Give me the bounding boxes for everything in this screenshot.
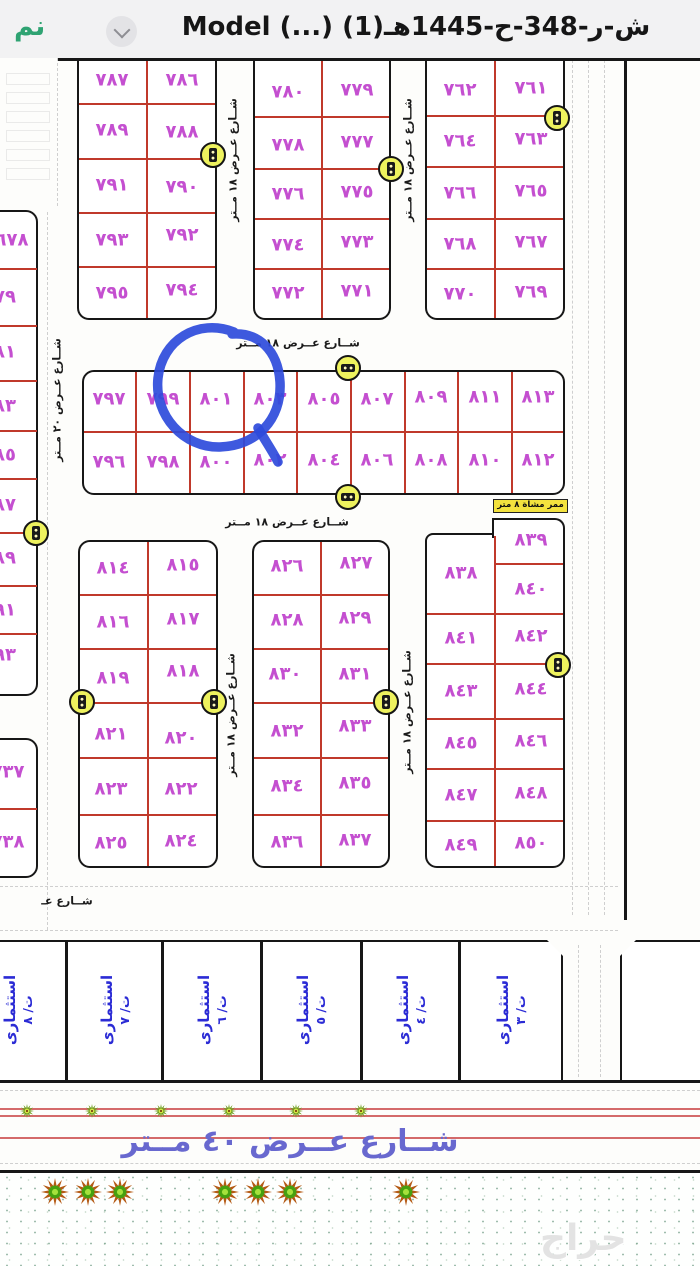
plot-number: ٧٩١ [96,175,129,196]
plot-number: ٨١٢ [522,450,555,471]
utility-marker-icon [23,520,49,546]
plot-number: ٨٠٩ [415,387,448,408]
plot-number: ٨٤٨ [515,783,548,804]
plot-number: ٧٨٦ [166,70,199,91]
plot-number: ٧٧٨ [272,135,305,156]
street-label-18m: شــارع عــرض ١٨ مــتر [227,98,240,222]
commercial-plot-label: استثمارىت/ ٥ [294,975,328,1045]
plot-number: ٧٧٩ [341,80,374,101]
plot-number: ٨٠٤ [308,450,341,471]
commercial-plot-label: استثمارىت/ ٤ [394,975,428,1045]
plot-number: ٨١٦ [97,612,130,633]
plot-number: ٨١٧ [167,609,200,630]
plot-number: ٨٠٦ [361,450,394,471]
plot-number: ٧٣٨ [0,832,24,853]
utility-marker-icon [69,689,95,715]
plot-number: ٨٣٥ [339,773,372,794]
plot-number: ٧٨٨ [166,122,199,143]
street-label-18m: شــارع عــرض ١٨ مــتر [225,653,238,777]
plot-number: ٧٧٦ [272,184,305,205]
plot-number: ٧٧٠ [444,284,477,305]
plot-number: ٨٣ [0,396,16,417]
street-label-18m: شــارع عــرض ١٨ مــتر [225,516,349,529]
plot-number: ٨٤٥ [445,733,478,754]
plot-number: ٨١٥ [167,555,200,576]
watermark: حراج [540,1218,627,1259]
plot-number-circled: ٨٠١ [200,389,233,410]
plot-number: ٩٣ [0,645,16,666]
small-tree-icon [154,1104,168,1118]
street-label-18m: شــارع عــرض ١٨ مــتر [236,337,360,350]
plot-number: ٧٧٢ [272,283,305,304]
plot-number: ٨٤٩ [445,835,478,856]
plot-number: ٨١٣ [522,387,555,408]
block-bottom-right [620,940,700,1082]
document-title: ش-ر-348-ح-1445هـ(1) (...) Model [140,12,692,42]
plot-number: ٨٢٢ [165,779,198,800]
plot-number: ٨٤٧ [445,785,478,806]
commercial-plot-label: استثمارىت/ ٣ [494,975,528,1045]
plot-number: ٨٣٢ [271,721,304,742]
plot-number: ٨٩ [0,548,16,569]
plot-number: ٨٠٢ [254,450,287,471]
utility-marker-icon [200,142,226,168]
plot-number: ٧٩٣ [96,230,129,251]
chevron-down-icon [113,21,130,38]
large-tree-icon [392,1178,420,1206]
map-canvas[interactable]: ٦٧٨ ٧٩ ٨١ ٨٣ ٨٥ ٨٧ ٨٩ ٩١ ٩٣ ٧٣٧ ٧٣٨ ٧٨٧ … [0,58,700,1266]
plot-number: ٧٨٠ [272,82,305,103]
plot-number: ٧٩٥ [96,283,129,304]
plot-number: ٧٩٤ [166,280,199,301]
plot-number: ٨٣٤ [271,776,304,797]
small-tree-icon [354,1104,368,1118]
large-tree-icon [74,1178,102,1206]
plot-number: ٧٦١ [515,78,548,99]
plot-number: ٨٢١ [95,724,128,745]
plot-number: ٨٢٦ [271,556,304,577]
plot-number: ٨٢٣ [95,779,128,800]
commercial-plot-label: استثمارىت/ ٨ [1,975,35,1045]
utility-marker-icon [373,689,399,715]
plot-number: ٨٤٦ [515,731,548,752]
plot-number: ٨٤١ [445,628,478,649]
plot-number: ٧٦٨ [444,234,477,255]
plot-number: ٨٣١ [339,664,372,685]
utility-marker-icon [544,105,570,131]
plot-number: ٧٦٤ [444,131,477,152]
plot-number: ٧٩٩ [147,389,180,410]
plot-number: ٧٦٢ [444,80,477,101]
small-tree-icon [20,1104,34,1118]
commercial-plot-label: استثمارىت/ ٧ [98,975,132,1045]
plot-number: ٨١٨ [167,661,200,682]
plot-number: ٧٦٩ [515,282,548,303]
plot-number: ٨٥٠ [515,833,548,854]
utility-marker-icon [545,652,571,678]
plot-number: ٧٩٢ [166,225,199,246]
plot-number: ٨١٤ [97,558,130,579]
plot-number: ٧٩٦ [93,452,126,473]
plot-number: ٨٥ [0,445,16,466]
utility-marker-icon [335,484,361,510]
plot-number: ٨٢٥ [95,833,128,854]
plan-viewer-app: نم ش-ر-348-ح-1445هـ(1) (...) Model [0,0,700,1266]
plot-number: ٩١ [0,600,16,621]
plot-number: ٨١٠ [469,450,502,471]
plot-number: ٧٧٣ [341,232,374,253]
plot-number: ٧٦٦ [444,183,477,204]
plot-number: ٧٨٧ [96,70,129,91]
plot-number: ٨٣٨ [445,563,478,584]
app-logo: نم [14,11,45,42]
plot-number: ٨٠٧ [361,389,394,410]
plot-number: ٧٦٧ [515,232,548,253]
plot-number: ٨٠٥ [308,389,341,410]
street-label-18m: شــارع عــرض ١٨ مــتر [401,650,414,774]
plot-number: ٧٧٧ [341,132,374,153]
plot-number: ٧٨٩ [96,120,129,141]
layout-dropdown-button[interactable] [106,16,137,47]
utility-marker-icon [378,156,404,182]
block-commercial [0,940,563,1082]
plot-number: ٨٢٤ [165,831,198,852]
app-header: نم ش-ر-348-ح-1445هـ(1) (...) Model [0,0,700,58]
large-tree-icon [106,1178,134,1206]
plot-number: ٨٤٠ [515,579,548,600]
plot-number: ٨٢٠ [165,728,198,749]
plot-number: ٨٤٤ [515,679,548,700]
street-label-20m: شــارع عــرض ٢٠ مــتر [51,338,64,462]
plot-number: ٨٣٩ [515,530,548,551]
plot-number: ٨١٩ [97,668,130,689]
plot-number: ٧٧١ [341,281,374,302]
plot-number: ٨٣٦ [271,832,304,853]
plot-number: ٧٣٧ [0,762,24,783]
utility-marker-icon [201,689,227,715]
plot-number: ٨٠٣ [254,389,287,410]
plot-number: ٨٤٣ [445,681,478,702]
plot-number: ٨٢٨ [271,610,304,631]
plot-number: ٧٩٧ [93,389,126,410]
plot-number: ٨٢٧ [340,553,373,574]
plot-number: ٧٧٤ [272,235,305,256]
street-label-40m: شــارع عــرض ٤٠ مــتر [10,1124,570,1159]
plot-number: ٧٧٥ [341,182,374,203]
street-label-partial: شــارع عـ [41,895,92,908]
small-tree-icon [222,1104,236,1118]
small-tree-icon [289,1104,303,1118]
large-tree-icon [276,1178,304,1206]
plot-number: ٨٣٣ [339,716,372,737]
plot-number: ٨٣٧ [339,830,372,851]
plot-number: ٧٦٣ [515,129,548,150]
plot-number: ٨٤٢ [515,626,548,647]
plot-number: ٧٩ [0,287,16,308]
large-tree-icon [244,1178,272,1206]
plot-number: ٨١ [0,342,16,363]
small-tree-icon [85,1104,99,1118]
utility-marker-icon [335,355,361,381]
large-tree-icon [211,1178,239,1206]
plot-number: ٨٠٠ [200,452,233,473]
plot-number: ٦٧٨ [0,230,28,251]
plot-number: ٨٣٠ [269,664,302,685]
plot-number: ٧٩٨ [147,452,180,473]
plot-number: ٧٦٥ [515,181,548,202]
commercial-plot-label: استثمارىت/ ٦ [195,975,229,1045]
plot-number: ٧٩٠ [166,177,199,198]
walkway-label-8m: ممر مشاة ٨ متر [493,499,568,513]
plot-number: ٨٧ [0,495,16,516]
plot-number: ٨٢٩ [339,608,372,629]
faint-background-linework [2,66,54,216]
street-label-18m: شــارع عــرض ١٨ مــتر [402,98,415,222]
plot-number: ٨٠٨ [415,450,448,471]
large-tree-icon [41,1178,69,1206]
plot-number: ٨١١ [469,387,502,408]
